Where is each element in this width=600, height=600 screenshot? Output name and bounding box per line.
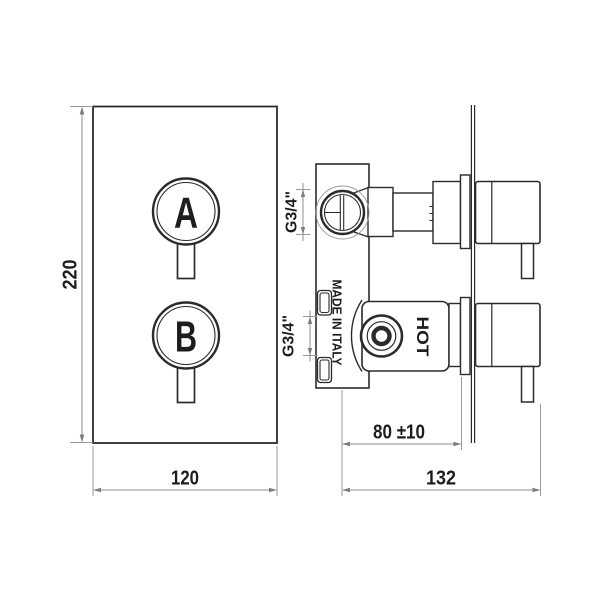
height-dimension: 220 <box>60 107 94 443</box>
top-outlet-assembly <box>316 182 461 244</box>
hot-label: HOT <box>413 317 432 358</box>
drawing-canvas: A B 220 120 <box>0 0 600 600</box>
knob-a-label: A <box>174 189 198 238</box>
knob-b-label: B <box>175 313 197 362</box>
bottom-port-label: G3/4" <box>281 315 298 357</box>
bottom-port-dimension: G3/4" <box>281 311 318 362</box>
bottom-knob-side <box>461 298 541 403</box>
bottom-knob-lever <box>522 367 534 403</box>
bottom-cartridge-neck <box>449 304 461 367</box>
top-knob-side <box>461 175 541 279</box>
technical-drawing: A B 220 120 <box>0 0 600 600</box>
width-dimension: 120 <box>93 446 277 496</box>
bottom-knob-body <box>476 304 541 367</box>
top-rosette <box>461 175 471 249</box>
overall-depth-dim-label: 132 <box>426 468 456 490</box>
front-view: A B 220 120 <box>60 107 278 497</box>
hot-inlet-assembly <box>361 302 461 372</box>
side-view: MADE IN ITALY HOT G3/4" G3/4" 80 ±10 <box>281 105 541 496</box>
top-port-dimension: G3/4" <box>284 183 311 241</box>
width-dim-label: 120 <box>171 468 199 490</box>
overall-depth-dimension: 132 <box>342 404 541 496</box>
knob-a-lever <box>178 243 195 279</box>
top-port-label: G3/4" <box>284 191 301 233</box>
top-knob-lever <box>522 244 534 279</box>
knob-b-lever <box>178 367 195 403</box>
height-dim-label: 220 <box>60 260 82 290</box>
made-in-italy-label: MADE IN ITALY <box>330 280 344 367</box>
depth-dim-label: 80 ±10 <box>373 422 425 444</box>
cartridge-body <box>433 182 461 244</box>
outlet-neck <box>368 188 393 237</box>
bottom-rosette <box>461 298 471 375</box>
outlet-pipe <box>393 193 433 231</box>
wall-line <box>471 105 474 443</box>
top-knob-body <box>476 182 541 244</box>
